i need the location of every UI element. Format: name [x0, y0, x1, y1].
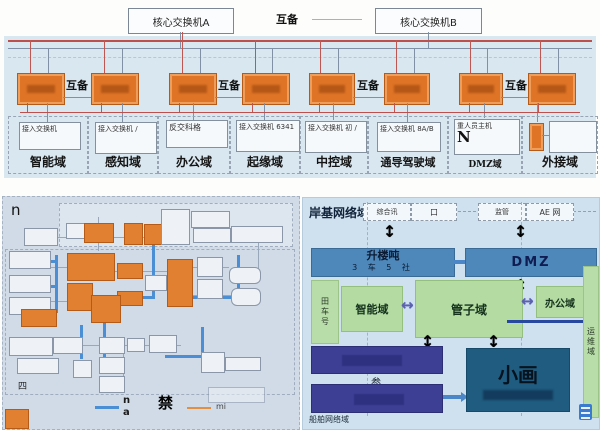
feeder-line	[122, 48, 123, 73]
core-switch-a-box: 核心交换机A	[128, 8, 234, 34]
feeder-line	[338, 48, 339, 73]
drop-line-red	[469, 103, 470, 112]
wire	[49, 267, 69, 268]
domain-label: 智能域	[9, 153, 87, 170]
bar-detail	[354, 394, 404, 405]
feeder-line	[104, 40, 105, 73]
mutual-backup-label: 互备	[357, 77, 379, 93]
feeder-line	[470, 40, 471, 73]
access-switch-node	[459, 73, 503, 105]
domain-group-4: 接入交换机 6341 起缘域	[230, 116, 300, 174]
core-switch-a-label: 核心交换机A	[153, 14, 210, 29]
orange-node	[5, 409, 29, 429]
node	[24, 228, 58, 246]
node	[225, 357, 261, 371]
core-detail	[483, 390, 553, 400]
core-a-red-drop	[182, 32, 183, 40]
feeder-line	[200, 48, 201, 73]
device-box: 接入交换机 8A/B	[377, 122, 441, 152]
external-link-box: 综合讯	[363, 203, 411, 221]
mutual-backup-label-top: 互备	[276, 11, 298, 27]
up-down-arrow-icon: ↕	[514, 224, 527, 240]
drop-line-red	[394, 103, 395, 112]
device-box	[549, 121, 597, 153]
node	[66, 223, 86, 239]
legend-label-a: a	[123, 407, 130, 418]
node	[99, 337, 125, 354]
core-zone-label: 小画	[467, 359, 569, 388]
bar-connector	[453, 260, 465, 264]
bar-to-core-link	[443, 395, 463, 399]
watermark-icon	[579, 404, 592, 420]
access-bar: 升楼吨 3 车 5 社	[311, 248, 455, 277]
domain-group-nav-bridge: 接入交换机 8A/B 通导驾驶域	[368, 116, 448, 174]
drop-line-red	[27, 103, 28, 112]
external-link-line	[542, 135, 549, 136]
legend-label-n: n	[123, 395, 130, 406]
red-bus-line	[8, 40, 592, 42]
shore-title: 岸基网络域	[309, 204, 369, 221]
domain-group-external: 外接域	[522, 116, 598, 174]
orange-node	[84, 223, 114, 243]
orange-node	[117, 263, 143, 279]
left-strip-zone: 田车号	[311, 280, 339, 344]
access-switch-node	[528, 73, 576, 105]
device-box: 反交科格	[166, 120, 228, 148]
pair-link-line	[215, 97, 242, 98]
access-switch-node	[91, 73, 139, 105]
up-down-arrow-icon: ↕	[383, 224, 396, 240]
external-orange-node	[529, 123, 544, 151]
bar-detail	[342, 355, 402, 366]
access-switch-node	[384, 73, 430, 105]
node	[201, 352, 225, 373]
office-zone-box: 办公域	[536, 286, 584, 318]
drop-line-red	[252, 103, 253, 112]
mgmt-zone-box: 管子域	[415, 280, 523, 338]
feeder-line	[320, 40, 321, 73]
drop-line-red	[319, 103, 320, 112]
core-zone-box: 小画	[466, 348, 570, 412]
smart-zone-box: 智能域	[341, 286, 403, 332]
pair-link-line	[501, 97, 528, 98]
mutual-backup-label: 互备	[66, 77, 88, 93]
domain-group-dmz: 重人员主机 N DMZ域	[448, 116, 522, 174]
legend-label-mi: mi	[216, 402, 226, 411]
corner-label: n	[11, 201, 21, 219]
mutual-backup-label: 互备	[218, 77, 240, 93]
node	[9, 275, 51, 293]
node	[145, 275, 167, 291]
access-switch-node	[309, 73, 355, 105]
device-big-letter: N	[457, 128, 471, 146]
node	[191, 211, 230, 228]
pair-link-line	[63, 97, 91, 98]
drop-line-red	[538, 103, 539, 112]
right-strip-label: 运维域	[586, 327, 597, 357]
node	[229, 267, 261, 284]
node	[231, 288, 261, 306]
forbidden-mark: 禁	[158, 392, 173, 413]
feeder-line	[30, 40, 31, 73]
dmz-bar: DMZ	[465, 248, 597, 277]
domain-group-perception: 接入交换机 / 感知域	[88, 116, 158, 174]
orange-node	[67, 253, 115, 281]
orange-node	[91, 295, 121, 323]
node	[231, 226, 283, 243]
node	[149, 335, 177, 353]
device-box: 重人员主机 N	[454, 119, 520, 155]
feeder-line	[182, 40, 183, 73]
domain-label: 感知域	[89, 153, 157, 170]
red-distribution-line	[20, 112, 580, 113]
wire	[49, 301, 69, 302]
access-switch-node	[17, 73, 65, 105]
domain-label: 中控域	[301, 153, 367, 170]
orange-node	[167, 259, 193, 307]
side-label: 四	[18, 379, 27, 392]
access-bar-title: 升楼吨	[312, 249, 454, 262]
device-box: 接入交换机 初 /	[305, 121, 367, 153]
left-strip-label: 田车号	[320, 297, 331, 327]
node	[197, 257, 223, 277]
left-right-arrow-icon: ↔	[401, 298, 414, 313]
node	[197, 279, 223, 299]
domain-label: 起缘域	[231, 153, 299, 170]
feeder-line	[558, 48, 559, 73]
navy-bar	[311, 384, 443, 413]
domain-label: 办公域	[159, 153, 229, 170]
domain-group-office: 反交科格 办公域	[158, 116, 230, 174]
access-switch-node	[242, 73, 290, 105]
blue-link	[165, 355, 203, 358]
drop-line-red	[101, 103, 102, 112]
orange-node	[67, 283, 93, 311]
node	[99, 376, 125, 393]
backup-link-line	[312, 19, 362, 20]
ship-detail-diagram: n	[2, 196, 300, 430]
core-switch-b-label: 核心交换机B	[400, 14, 457, 29]
node	[127, 338, 145, 352]
orange-node	[21, 309, 57, 327]
navy-bar	[311, 346, 443, 374]
domain-group-intelligent: 接入交换机 智能域	[8, 116, 88, 174]
feeder-line	[396, 40, 397, 73]
node	[17, 358, 59, 374]
node	[99, 357, 125, 374]
domain-group-central-control: 接入交换机 初 / 中控域	[300, 116, 368, 174]
shore-footer: 船舶网络域	[309, 414, 349, 425]
feeder-line	[540, 40, 541, 73]
node	[161, 209, 190, 245]
node	[9, 337, 53, 356]
right-strip-zone: 运维域	[583, 266, 599, 418]
device-box: 接入交换机	[19, 122, 81, 150]
external-link-box: AE 网	[526, 203, 574, 221]
domain-label: 通导驾驶域	[369, 154, 447, 170]
gray-bus-line	[8, 48, 592, 49]
node	[73, 360, 92, 378]
legend-blue-line	[95, 406, 119, 409]
mutual-backup-label: 互备	[505, 77, 527, 93]
domain-label: 外接域	[523, 153, 597, 170]
dashed-bus-line	[8, 57, 592, 58]
pair-link-line	[353, 97, 384, 98]
legend-orange-line	[187, 407, 211, 409]
access-bar-subtitle: 3 车 5 社	[312, 262, 454, 273]
shore-network-diagram: 岸基网络域 综合讯 口 监管 AE 网 ↕ ↕ 升楼吨 3 车 5 社 DMZ …	[302, 197, 600, 430]
device-box: 接入交换机 6341	[236, 120, 300, 152]
feeder-line	[272, 48, 273, 73]
external-link-box: 口	[411, 203, 457, 221]
feeder-line	[487, 48, 488, 73]
drop-line-red	[179, 103, 180, 112]
external-link-box: 监管	[478, 203, 526, 221]
node	[53, 337, 83, 354]
device-box: 接入交换机 /	[95, 122, 157, 154]
node	[193, 228, 231, 243]
feeder-line	[414, 48, 415, 73]
node	[208, 387, 265, 403]
feeder-line	[48, 48, 49, 73]
orange-node	[124, 223, 143, 245]
left-right-arrow-icon: ↔	[521, 294, 534, 309]
office-to-ops-link	[507, 320, 587, 323]
core-switch-b-box: 核心交换机B	[375, 8, 482, 34]
blue-link	[55, 255, 58, 313]
feeder-line	[255, 40, 256, 73]
access-switch-node	[169, 73, 217, 105]
domain-label: DMZ域	[449, 157, 521, 170]
node	[9, 251, 51, 269]
